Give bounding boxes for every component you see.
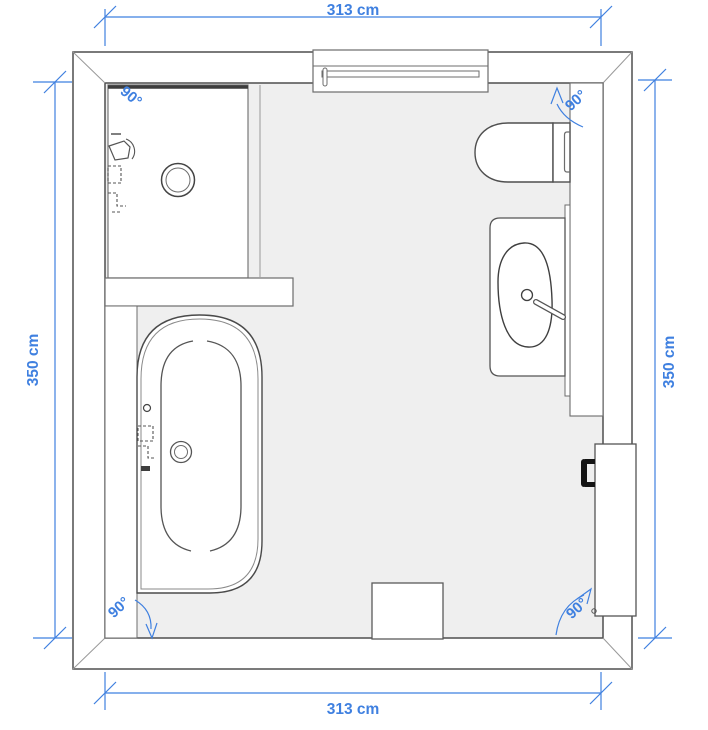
bathtub-faucet-knob-icon [144, 405, 151, 412]
bathtub-outline[interactable] [137, 315, 262, 593]
dimension-label-top: 313 cm [327, 2, 380, 19]
floor-plan-canvas: 313 cm 313 cm 350 cm 350 cm 90° 90° [0, 0, 708, 730]
washbasin-drain-icon [522, 290, 533, 301]
dimension-label-left: 350 cm [25, 334, 42, 387]
door-leaf[interactable] [595, 444, 636, 616]
side-ledge[interactable] [105, 306, 137, 638]
dimension-right: 350 cm [638, 69, 678, 649]
dimension-label-right: 350 cm [661, 336, 678, 389]
window[interactable] [313, 50, 488, 92]
bathtub-drain-icon [171, 442, 192, 463]
dimension-top: 313 cm [94, 2, 612, 46]
window-glass [322, 71, 479, 77]
dimension-bottom: 313 cm [94, 672, 612, 718]
door-handle-top [585, 459, 595, 464]
washbasin-vanity[interactable] [490, 218, 565, 376]
dimension-left: 350 cm [25, 71, 72, 649]
panel-ledge [565, 205, 570, 396]
toilet-bowl[interactable] [475, 123, 553, 182]
dimension-label-bottom: 313 cm [327, 701, 380, 718]
toilet[interactable] [475, 123, 570, 182]
floor-plan: 313 cm 313 cm 350 cm 350 cm 90° 90° [0, 0, 708, 730]
wall-panel[interactable] [570, 83, 603, 416]
bathtub[interactable] [137, 315, 262, 593]
wall-block[interactable] [372, 583, 443, 639]
shelf[interactable] [105, 278, 293, 306]
bathtub-spout-icon [141, 466, 150, 471]
window-handle-icon [323, 68, 327, 86]
door-handle-bottom [585, 482, 595, 487]
shower[interactable] [108, 85, 260, 278]
